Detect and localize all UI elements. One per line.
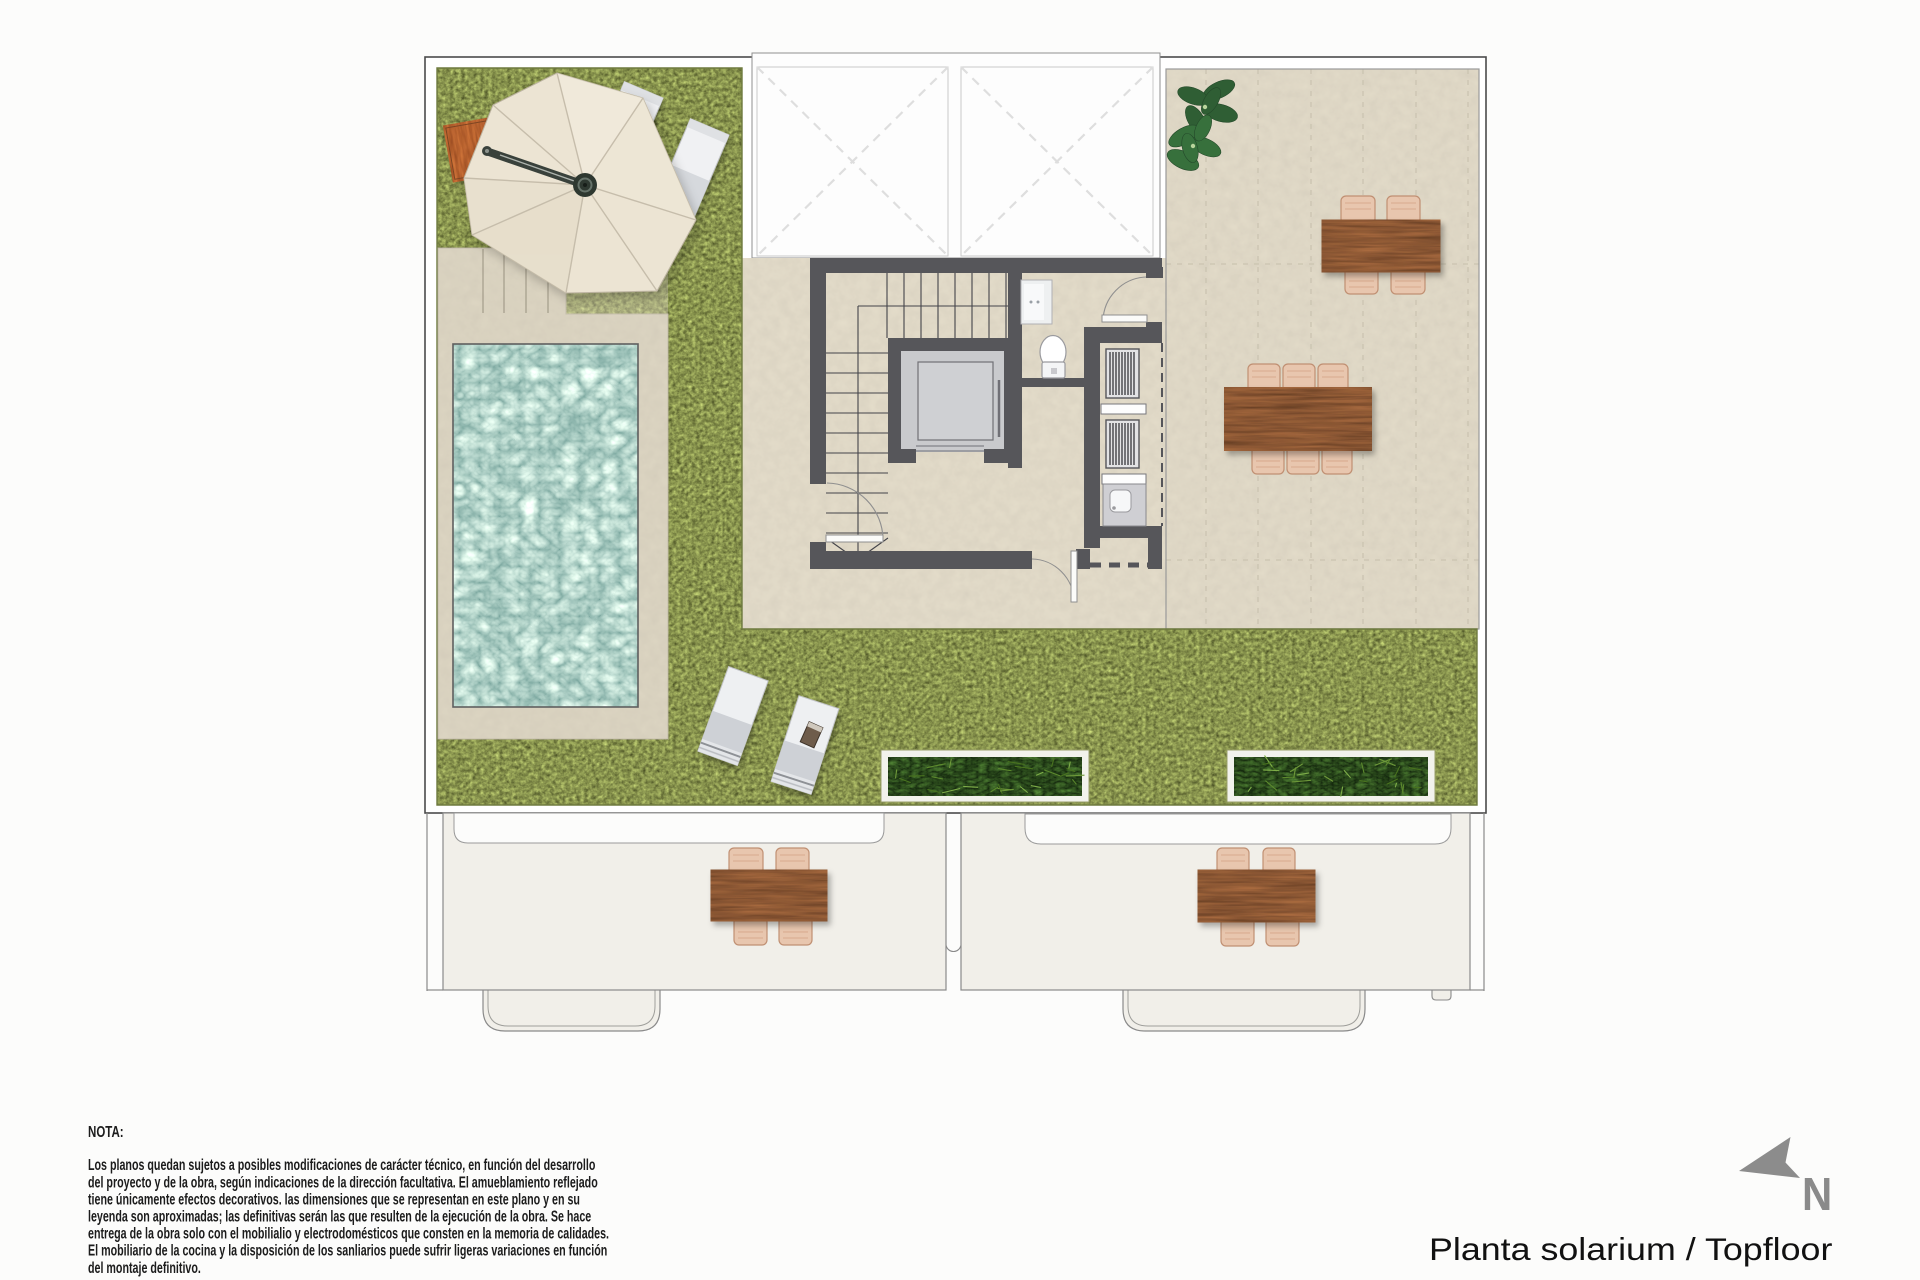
svg-text:del proyecto y de la obra, seg: del proyecto y de la obra, según indicac… (88, 1173, 598, 1191)
svg-text:El mobiliario de la cocina y l: El mobiliario de la cocina y la disposic… (88, 1242, 607, 1260)
svg-text:N: N (1802, 1169, 1832, 1221)
svg-text:Planta solarium / Topfloor: Planta solarium / Topfloor (1429, 1232, 1832, 1267)
svg-text:entrega de la obra solo con el: entrega de la obra solo con el mobiliali… (88, 1225, 609, 1243)
svg-text:tiene únicamente efectos decor: tiene únicamente efectos decorativos. la… (88, 1190, 580, 1208)
svg-text:NOTA:: NOTA: (88, 1122, 124, 1140)
svg-text:del montaje definitivo.: del montaje definitivo. (88, 1259, 201, 1277)
svg-text:Los planos quedan sujetos a po: Los planos quedan sujetos a posibles mod… (88, 1156, 595, 1174)
svg-text:leyenda son aproximadas; las d: leyenda son aproximadas; las definitivas… (88, 1207, 592, 1225)
